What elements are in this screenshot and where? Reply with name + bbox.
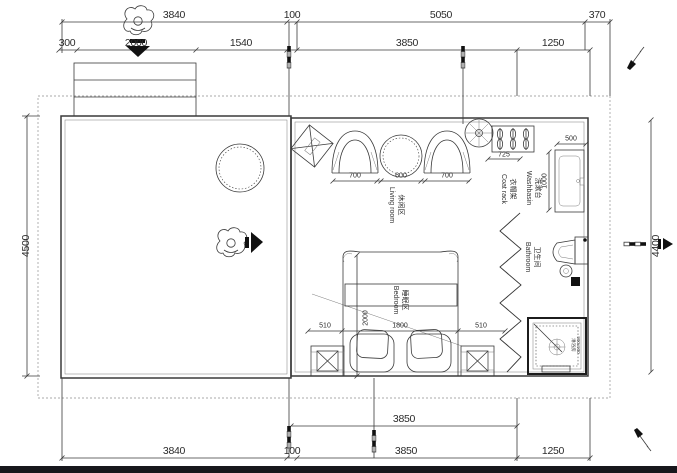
plant-icon <box>465 119 493 147</box>
dim-top-300: 300 <box>59 37 76 49</box>
dim-bottom-100: 100 <box>284 445 301 457</box>
dim-bottom-inner-3850: 3850 <box>393 413 415 425</box>
dim-top-100: 100 <box>284 9 301 21</box>
coat-rack-label: 衣帽架 Coat rack <box>498 174 516 204</box>
entry-arrow-right-icon <box>245 232 263 253</box>
dim-bed-1800: 1800 <box>392 323 408 330</box>
dim-top-3850: 3850 <box>396 37 418 49</box>
washbasin-label-en: Washbasin <box>523 171 532 205</box>
bedroom-label-en: Bedroom <box>390 286 399 314</box>
dim-bottom-3840: 3840 <box>163 445 185 457</box>
nightstand-right <box>461 346 494 376</box>
dim-top-5050: 5050 <box>430 9 452 21</box>
dim-bottom-1250: 1250 <box>542 445 564 457</box>
dim-bed-510-right: 510 <box>475 323 487 330</box>
coat-rack-label-en: Coat rack <box>498 174 507 204</box>
washbasin-counter <box>555 150 584 212</box>
dim-washbasin-500: 500 <box>565 136 577 143</box>
dim-table-600: 600 <box>395 173 407 180</box>
toilet <box>553 237 588 286</box>
pen-marker-icon-bottom <box>634 428 651 451</box>
living-room-label-zh: 休闲区 <box>395 187 404 223</box>
dim-top-3840: 3840 <box>163 9 185 21</box>
dim-bottom-3850: 3850 <box>395 445 417 457</box>
dim-chair-700-left: 700 <box>349 173 361 180</box>
living-room-label: 休闲区 Living room <box>386 187 404 223</box>
survey-pole-icons <box>287 46 646 452</box>
coat-rack-label-zh: 衣帽架 <box>507 174 516 204</box>
tub-chair-right <box>424 131 470 173</box>
bathroom-label-en: Bathroom <box>522 242 531 272</box>
dimension-lines <box>27 22 651 458</box>
plan-linework <box>0 0 677 473</box>
dim-top-1540: 1540 <box>230 37 252 49</box>
folding-partition <box>500 213 521 372</box>
dim-left-4500: 4500 <box>20 235 32 257</box>
bedroom-label-zh: 睡眠区 <box>399 286 408 314</box>
washbasin-label-zh: 洗漱台 <box>532 171 541 205</box>
dim-bed-2000: 2000 <box>363 310 370 326</box>
washbasin-label: 洗漱台 Washbasin <box>523 171 541 205</box>
living-room-label-en: Living room <box>386 187 395 223</box>
dim-washbasin-1000: 1000 <box>542 173 549 189</box>
tea-table-round <box>380 135 422 177</box>
nightstand-left <box>311 346 344 376</box>
survey-pole-icon <box>624 242 646 246</box>
dim-bed-510-left: 510 <box>319 323 331 330</box>
shower-label-zh: 淋浴房 <box>570 336 575 353</box>
round-table-left-room <box>216 144 264 192</box>
dimension-ticks <box>25 20 654 461</box>
side-table-diamond <box>291 125 333 167</box>
axis-lines <box>22 19 610 461</box>
bathroom-label-zh: 卫生间 <box>531 242 540 272</box>
coat-rack <box>492 126 534 152</box>
entry-steps <box>74 63 196 116</box>
floor-plan-canvas: 3840 100 5050 370 300 2000 1540 3850 125… <box>0 0 677 473</box>
tub-chair-left <box>332 131 378 173</box>
bathroom-label: 卫生间 Bathroom <box>522 242 540 272</box>
bottom-bar <box>0 466 677 473</box>
person-top-view-icon-interior <box>217 228 247 257</box>
dim-top-2000: 2000 <box>125 37 147 49</box>
shower-label: 900x900 淋浴房 <box>570 336 580 353</box>
pen-marker-icon-top <box>627 47 644 70</box>
dim-top-1250: 1250 <box>542 37 564 49</box>
dim-coatrack-725: 725 <box>498 152 510 159</box>
bedroom-label: 睡眠区 Bedroom <box>390 286 408 314</box>
dim-top-370: 370 <box>589 9 606 21</box>
dim-right-4400: 4400 <box>650 235 662 257</box>
person-top-view-icon-entrance <box>124 6 154 35</box>
dim-chair-700-right: 700 <box>441 173 453 180</box>
